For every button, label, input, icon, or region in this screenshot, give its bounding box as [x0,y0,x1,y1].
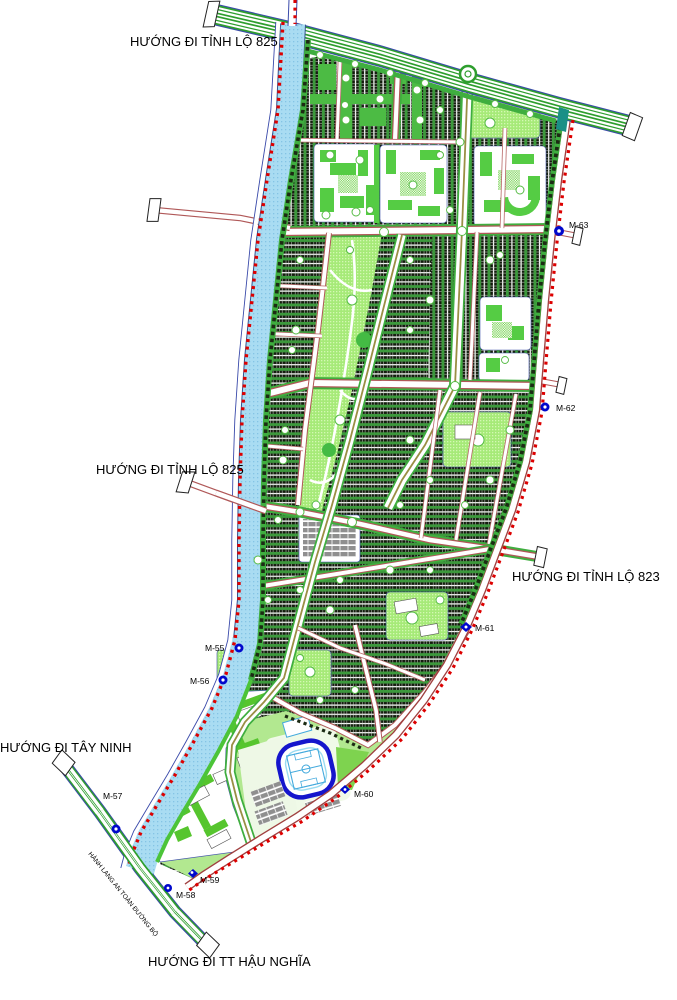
svg-text:HƯỚNG ĐI TỈNH LỘ 823: HƯỚNG ĐI TỈNH LỘ 823 [512,569,660,584]
svg-text:M-58: M-58 [176,890,196,900]
svg-text:M-55: M-55 [205,643,225,653]
svg-text:HƯỚNG ĐI TT HẬU NGHĨA: HƯỚNG ĐI TT HẬU NGHĨA [148,954,311,969]
svg-text:M-56: M-56 [190,676,210,686]
svg-text:HƯỚNG ĐI TỈNH LỘ 825: HƯỚNG ĐI TỈNH LỘ 825 [130,34,278,49]
svg-text:M-57: M-57 [103,791,123,801]
svg-text:M-62: M-62 [556,403,576,413]
svg-text:M-59: M-59 [200,875,220,885]
svg-text:M-63: M-63 [569,220,589,230]
svg-text:HƯỚNG ĐI TÂY NINH: HƯỚNG ĐI TÂY NINH [0,740,132,755]
svg-text:M-60: M-60 [354,789,374,799]
svg-text:M-61: M-61 [475,623,495,633]
svg-text:HƯỚNG ĐI TỈNH LỘ 825: HƯỚNG ĐI TỈNH LỘ 825 [96,462,244,477]
